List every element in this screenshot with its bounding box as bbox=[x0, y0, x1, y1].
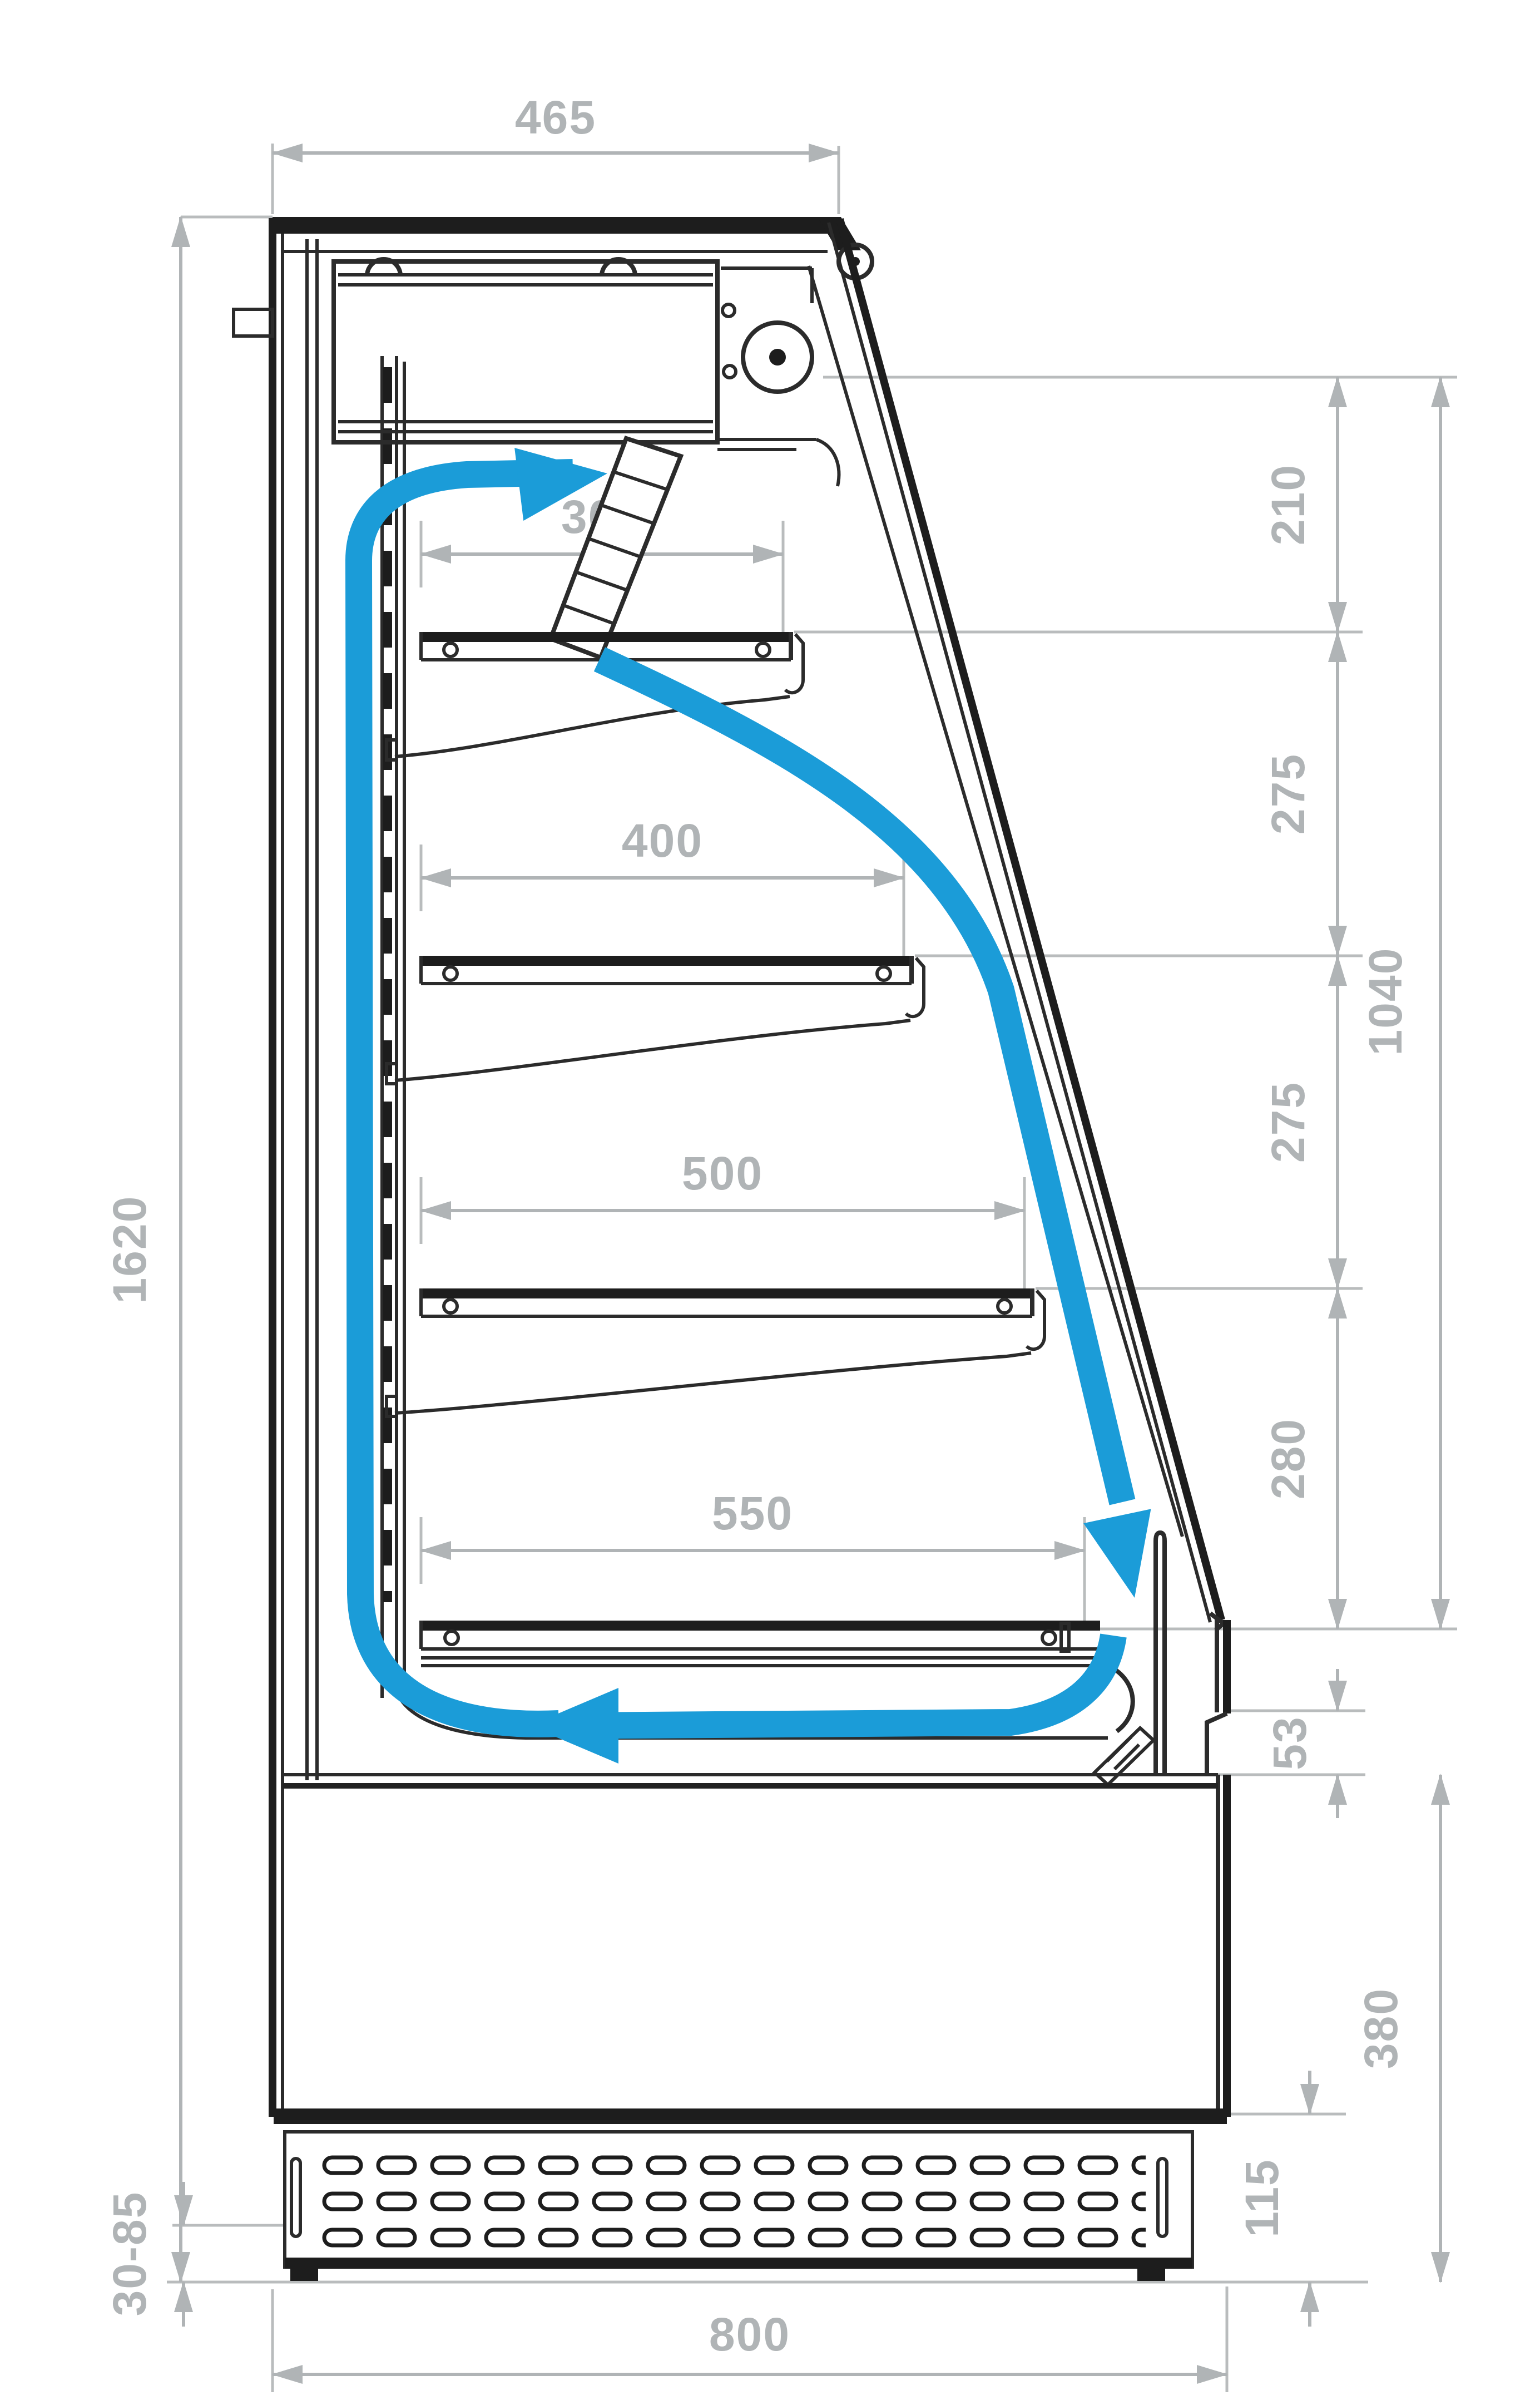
grille-slots bbox=[320, 2149, 1146, 2258]
shelf-screw bbox=[756, 643, 770, 656]
label-grille-height: 115 bbox=[1236, 2159, 1288, 2238]
label-base-height: 380 bbox=[1355, 1988, 1407, 2069]
bottom-deck bbox=[421, 1533, 1165, 1785]
cabinet-drawing bbox=[234, 217, 1227, 2281]
shelf-screw bbox=[444, 643, 457, 656]
shelf-bracket-curve bbox=[395, 1020, 910, 1080]
diagram-page: 465 300 400 500 550 800 210 275 275 280 … bbox=[0, 0, 1540, 2400]
label-top-depth: 465 bbox=[515, 91, 596, 144]
light-duct-box bbox=[334, 261, 717, 442]
label-gap-275a: 275 bbox=[1262, 753, 1314, 834]
airflow-return-arrow bbox=[529, 1688, 618, 1764]
adjustable-foot bbox=[290, 2269, 318, 2281]
shelf-front-clip bbox=[1027, 1291, 1044, 1349]
label-overall-height: 1620 bbox=[103, 1196, 156, 1304]
dimension-labels: 465 300 400 500 550 800 210 275 275 280 … bbox=[103, 91, 1412, 2361]
label-overall-depth: 800 bbox=[709, 2308, 790, 2361]
shelf-bracket-curve bbox=[395, 1353, 1031, 1413]
front-face bbox=[1207, 1618, 1227, 2117]
glass-front bbox=[809, 219, 1224, 1630]
label-deck-depth: 550 bbox=[712, 1487, 793, 1539]
left-wall bbox=[234, 218, 317, 2117]
top-panel bbox=[273, 217, 839, 234]
label-gap-280: 280 bbox=[1262, 1418, 1314, 1499]
label-feet-range: 30-85 bbox=[103, 2191, 156, 2317]
grille-handle-slot bbox=[1158, 2159, 1167, 2236]
ventilation-grille bbox=[285, 2132, 1192, 2269]
shelf-3 bbox=[387, 1288, 1044, 1416]
base-bottom-band bbox=[274, 2108, 1227, 2124]
display-case-section-drawing: 465 300 400 500 550 800 210 275 275 280 … bbox=[0, 0, 1540, 2400]
label-sill-step: 53 bbox=[1264, 1716, 1316, 1770]
shelf-front-clip bbox=[785, 634, 803, 693]
label-canopy-gap: 210 bbox=[1262, 464, 1314, 545]
label-shelf3-depth: 500 bbox=[682, 1147, 763, 1199]
grille-handle-slot bbox=[291, 2159, 300, 2236]
shelf-front-clip bbox=[906, 958, 924, 1016]
bumper-step bbox=[1207, 1713, 1227, 1775]
shelf-screw bbox=[444, 1300, 457, 1313]
shelf-screw bbox=[444, 967, 457, 980]
label-gap-275b: 275 bbox=[1262, 1082, 1314, 1163]
fan-assembly bbox=[717, 245, 872, 486]
front-riser bbox=[1156, 1533, 1165, 1775]
wall-mount-tab bbox=[234, 309, 273, 336]
label-opening-height: 1040 bbox=[1359, 947, 1412, 1056]
shelf-screw bbox=[877, 967, 890, 980]
shelf-2 bbox=[387, 956, 924, 1084]
label-shelf2-depth: 400 bbox=[622, 814, 703, 867]
base bbox=[274, 1775, 1227, 2281]
deck-screw bbox=[445, 1631, 458, 1645]
adjustable-foot bbox=[1137, 2269, 1165, 2281]
airflow-air-curtain bbox=[600, 659, 1122, 1502]
shelf-screw bbox=[998, 1300, 1011, 1313]
deck-screw bbox=[1042, 1631, 1056, 1645]
